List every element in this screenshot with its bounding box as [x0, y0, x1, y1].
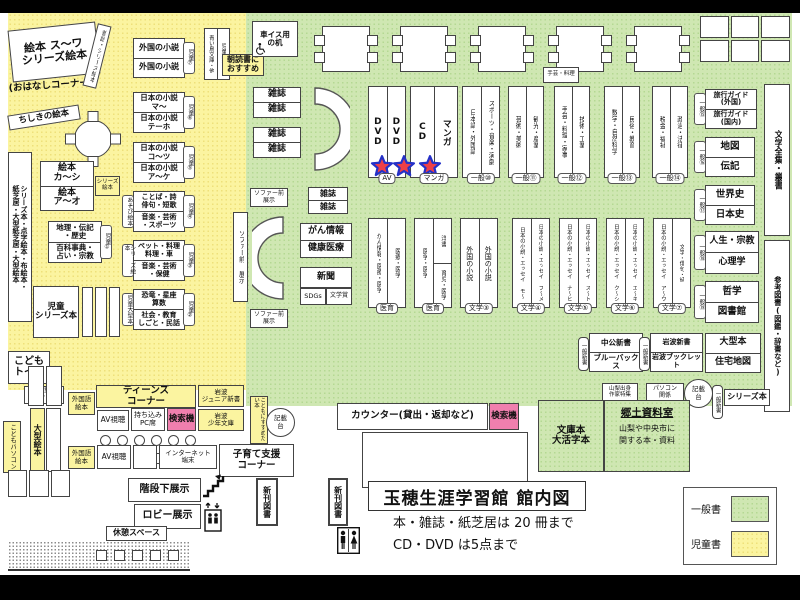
shelf-row: ソファー前展示 [251, 189, 287, 206]
new-av-star-2 [392, 154, 416, 178]
shelf-column: 日本の小説・エッセイ ス〜ト [578, 219, 597, 307]
text-line: 新刊図書 [262, 486, 271, 518]
shelf-row: 外国語絵本 [69, 393, 94, 414]
shelf-row: 日本史 [706, 205, 754, 225]
search-machine-1: 検索機 [167, 408, 196, 431]
text-line: 洋書 [439, 235, 446, 247]
shelf-row: 岩波ブックレット [651, 352, 702, 371]
text-line: 大活字本 [552, 436, 590, 446]
iwanami-shinsho-booklet: 岩波新書岩波ブックレット [650, 333, 703, 372]
shelf-class-tag: 児童② [183, 293, 195, 326]
shelf-row: 文学賞 [327, 289, 351, 304]
chair [470, 52, 481, 63]
general-shinsho-tag-3: 一般新書 [712, 385, 723, 419]
shelf-geography-encyclopedia: 地理・伝記・歴史百科事典・占い・宗教児童① [48, 221, 102, 263]
text-line: 端末 [165, 457, 211, 464]
chair [65, 134, 76, 145]
shelf-class-tag: 医育 [376, 303, 398, 314]
text-line: 関する本・資料 [619, 437, 675, 446]
sdgs: SDGs [300, 288, 326, 305]
byo-pc-seat: 持ち込みPC席 [131, 408, 165, 431]
sofa-display-bottom: ソファー前展示 [250, 309, 288, 328]
text-line: 展示 [254, 319, 284, 325]
text-line: こどもパソコン [8, 424, 15, 470]
text-line: おすすめ [227, 65, 259, 74]
chair [445, 52, 456, 63]
foreign-language-ehon-2: 外国語絵本 [68, 446, 95, 469]
newspaper: 新聞 [300, 267, 352, 288]
shelf-row: 雑誌 [254, 88, 300, 102]
shelf-class-tag: 一般⑯ [694, 141, 706, 173]
shelf-dinosaur-society: 恐竜・星座算数社会・教育しごと・民話児童②児童大型本 [133, 289, 185, 330]
text-line: 台 [692, 394, 705, 401]
shelf-class-tag: AV [378, 173, 395, 184]
shelf-class-tag: 児童④ [183, 195, 195, 228]
shelf-cell [29, 470, 48, 497]
literature-complete-works: 文学全集・叢書 [764, 84, 790, 236]
text-line: しごと・民話 [138, 320, 180, 328]
large-books-housing-maps: 大型本住宅地図 [705, 333, 761, 373]
shelf-cell [731, 40, 760, 62]
shelf-column: 文学・俳句・詩 [672, 219, 691, 307]
chair [601, 35, 612, 46]
text-line: 手芸・料理・家事 [560, 106, 567, 158]
text-line: 青い鳥文庫・他 [208, 35, 214, 74]
text-line: CD [417, 122, 427, 142]
shelf-column: 数学・自然科学 [605, 87, 622, 177]
shelf-class-tag: 文学⑥ [611, 303, 639, 314]
chuko-shinsho-bluebacks: 中公新書ブルーバックス [589, 333, 643, 372]
series-ehon-tag: シリーズ絵本 [95, 176, 120, 196]
text-line: 日本語・外国語 [468, 109, 475, 155]
wheelchair-icon [254, 42, 267, 55]
shelf-row: 音楽・芸術・保健 [134, 260, 184, 280]
shelf-kotoba-poetry: ことば・詩俳句・短歌音楽・芸術・スポーツ児童④あそび絵本 [133, 191, 185, 232]
blank-kiosk [133, 445, 157, 469]
shelf-side-label: あそび絵本 [122, 195, 134, 228]
text-line: コ〜ツ [140, 153, 178, 161]
elevator-icon [204, 501, 222, 532]
chair [314, 35, 325, 46]
philosophy-library-science: 哲学図書館一般⑲ [705, 281, 759, 323]
cancer-info-health: がん情報健康医療 [300, 223, 352, 258]
legend-row-general: 一般書 [691, 496, 769, 522]
text-line: がん情報・医療・医学 [374, 233, 381, 293]
sofa-front-display-strip: ソファー前 展示 [233, 212, 248, 302]
shelf-cell [95, 287, 106, 337]
shelf-column: 技術・工業 [572, 87, 590, 177]
text-line: こどもにすすめたい本 [253, 397, 266, 442]
text-line: 紙芝居・大型紙芝居・大型絵本 [12, 185, 20, 290]
internet-terminal: インターネット端末 [159, 445, 217, 469]
text-line: PC席 [134, 420, 162, 428]
shelf-jp-essay-mo: 日本の小説・エッセイ モ〜日本の小説・エッセイ フ〜メ文学④ [512, 218, 550, 308]
shelf-row: 伝記 [706, 157, 754, 177]
big-ehon-cell [46, 408, 61, 472]
chair [110, 134, 121, 145]
shelf-class-tag: 児童⑦ [183, 42, 195, 74]
new-books-1: 新刊図書 [256, 478, 278, 526]
shelf-ehon-ka-shi: 絵本カ〜シ絵本ア〜オ [40, 161, 94, 211]
shelf-row: AV視聴 [98, 446, 130, 468]
shelf-column: スポーツ・音楽・演劇 [481, 87, 500, 177]
shelf-cell [8, 470, 27, 497]
shelf-row: インターネット端末 [160, 446, 216, 468]
shelf-row: 旅行ガイド(国内) [706, 109, 756, 129]
text-line: ・保健 [142, 271, 177, 279]
shelf-class-tag: 一般⑫ [558, 173, 587, 184]
shelf-row: 子育て支援コーナー [220, 445, 293, 476]
text-line: ・歴史 [56, 232, 94, 240]
shelf-cell [731, 16, 760, 38]
text-line: (外国) [714, 99, 749, 107]
shelf-row: ブルーバックス [590, 352, 642, 371]
text-line: テーホ [140, 123, 178, 131]
shelf-slats-1 [82, 287, 120, 337]
text-line: 日本の小説・エッセイ ク〜シ [613, 224, 619, 302]
literary-award: 文学賞 [326, 288, 352, 305]
legend: 一般書 児童書 [683, 487, 777, 565]
shelf-row: ことば・詩俳句・短歌 [134, 192, 184, 211]
shelf-column: 日本の小説・エッセイ ア〜ウ [654, 219, 672, 307]
rest-space-label: 休憩スペース [106, 526, 167, 541]
shelf-row: 山梨出身作家特集 [603, 384, 637, 401]
local-materials-room: 郷土資料室山梨や中央市に関する本・資料 [604, 400, 690, 472]
stairs-icon [200, 471, 226, 499]
shelf-row: ロビー展示 [135, 505, 200, 528]
shelf-column: 手芸・料理・家事 [555, 87, 572, 177]
shelf-row: 健康医療 [301, 240, 351, 257]
shelf-row: 岩波少年文庫 [199, 410, 243, 430]
chair [679, 35, 690, 46]
lending-rule-books: 本・雑誌・紙芝居は 20 冊まで [393, 512, 574, 531]
shelf-craft-tech: 手芸・料理・家事技術・工業一般⑫ [554, 86, 590, 178]
text-line: ティーンズ [123, 386, 169, 396]
shelf-column: 日本の小説・エッセイ フ〜メ [531, 219, 550, 307]
general-shinsho-tag-1: 一般新書 [578, 337, 589, 371]
shelf-column: 医学・医学 [415, 219, 433, 307]
shelf-row: 休憩スペース [107, 527, 166, 540]
chair [445, 35, 456, 46]
shelf-row: 文庫本大活字本 [539, 401, 603, 471]
shelf-row: AV視聴 [98, 411, 128, 430]
shelf-row: がん情報 [301, 224, 351, 240]
shelf-cell [700, 40, 729, 62]
shelf-row: 人生・宗教 [706, 232, 758, 252]
shelf-column: 日本の小説・エッセイ モ〜 [513, 219, 531, 307]
text-line: スポーツ・音楽・演劇 [487, 100, 494, 165]
lending-rule-av: CD・DVD は5点まで [393, 534, 518, 553]
text-line: 台 [274, 423, 287, 430]
shelf-row: 新聞 [301, 268, 351, 287]
shelf-class-tag: 一般⑪ [512, 173, 541, 184]
shelf-jp-novels-ma-ho: 日本の小説マ〜日本の小説テーホ児童⑥ [133, 92, 185, 133]
shelf-column: 外国の小説 [479, 219, 498, 307]
shelf-class-tag: 一般⑬ [608, 173, 637, 184]
text-line: ・スポーツ [142, 222, 177, 230]
big-picture-books: 大型絵本 [30, 408, 45, 472]
text-line: マンガ [441, 119, 451, 146]
chair [470, 35, 481, 46]
shelf-class-tag: 文学⑤ [564, 303, 592, 314]
new-books-2: 新刊図書 [328, 478, 348, 526]
shelf-cancer-medical: がん情報・医療・医学医療・医学医育 [368, 218, 406, 308]
shelf-jp-novels-ko-ke: 日本の小説コ〜ツ日本の小説ア〜ケ児童⑤ [133, 142, 185, 183]
shelf-row: 絵本カ〜シ [41, 162, 93, 186]
kosodate-support-corner: 子育て支援コーナー [219, 444, 294, 477]
shelf-jp-essay-a-u: 日本の小説・エッセイ ア〜ウ文学・俳句・詩文学⑦ [653, 218, 691, 308]
legend-general-label: 一般書 [691, 501, 721, 516]
big-ehon-shelf-top [28, 366, 62, 406]
text-line: 絵本 [72, 458, 92, 465]
text-line: 新刊図書 [333, 486, 342, 518]
shelf-foreign-novels: 外国の小説外国の小説文学③ [460, 218, 498, 308]
shelf-cell [109, 287, 120, 337]
shelf-row: 中公新書 [590, 334, 642, 352]
general-shinsho-tag-2: 一般新書 [639, 337, 650, 371]
shelf-side-label: 児童大型本 [122, 293, 134, 326]
shelf-column: 観光・産業 [526, 87, 544, 177]
shelf-row: 朝読書におすすめ [223, 55, 263, 75]
text-line: 民俗・教育 [627, 116, 634, 149]
life-religion-psychology: 人生・宗教心理学一般⑱ [705, 231, 759, 274]
text-line: 政治・法律 [675, 116, 682, 149]
shelf-row: 旅行ガイド(外国) [706, 90, 756, 109]
iwanami-shonen-bunko: 岩波少年文庫 [198, 409, 244, 431]
shelf-row: 岩波ジュニア新書 [199, 386, 243, 406]
shelf-class-tag: 児童⑥ [183, 96, 195, 129]
chair [314, 52, 325, 63]
chair [601, 52, 612, 63]
series-braille-kamishibai-strip: シリーズ本・点字絵本・布絵本・紙芝居・大型紙芝居・大型絵本 [8, 152, 32, 322]
text-line: 文学全集・叢書 [772, 130, 782, 190]
shelf-class-tag: 児童⑤ [183, 146, 195, 179]
text-line: 少年文庫 [208, 420, 234, 427]
chair [523, 35, 534, 46]
text-line: マ〜 [140, 103, 178, 111]
shelf-art-tourism: 芸術・美術観光・産業一般⑪ [508, 86, 544, 178]
text-line: コーナー [123, 397, 169, 407]
shelf-column: 医療・医学 [387, 219, 406, 307]
shelf-class-tag: 文学⑦ [658, 303, 686, 314]
maps-biographies: 地図伝記一般⑯ [705, 137, 755, 177]
world-japan-history: 世界史日本史一般⑰ [705, 185, 755, 225]
shelf-slats-top-right [700, 16, 790, 62]
counter: カウンター(貸出・返却など) [337, 403, 488, 430]
text-line: 税金・福祉 [658, 116, 665, 149]
text-line: 一般新書 [580, 343, 586, 365]
round-table [74, 120, 112, 158]
travel-guides: 旅行ガイド(外国)旅行ガイド(国内)一般⑮ [705, 89, 757, 129]
shelf-row: 日本の小説コ〜ツ [134, 143, 184, 162]
shelf-column: 外国の小説 [461, 219, 479, 307]
shelf-cell [82, 287, 93, 337]
chair [392, 35, 403, 46]
shelf-row: 社会・教育しごと・民話 [134, 309, 184, 329]
text-line: 関係 [653, 393, 677, 399]
shelf-row: 雑誌 [254, 128, 300, 142]
iwanami-junior-shinsho: 岩波ジュニア新書 [198, 385, 244, 407]
shelf-row: 大型本 [706, 334, 760, 353]
shelf-row: 外国語絵本 [69, 447, 94, 468]
text-line: ア〜オ [53, 198, 80, 208]
text-line: 日本の小説・エッセイ エ〜キ [631, 224, 637, 302]
chair [548, 52, 559, 63]
chair [548, 35, 559, 46]
text-line: ソファー前 展示 [237, 230, 244, 284]
shelf-row: 検索機 [168, 409, 195, 430]
text-line: 数学・自然科学 [610, 109, 617, 155]
shelf-cell [28, 366, 44, 406]
magazines-1: 雑誌雑誌 [253, 87, 301, 118]
reference-books: 参考図書(図鑑・辞書など) [764, 240, 790, 412]
shelf-row: 住宅地図 [706, 353, 760, 373]
shelf-row: シリーズ本 [725, 390, 769, 405]
shelf-column: 民俗・教育 [622, 87, 640, 177]
text-line: 医学・医学 [420, 248, 427, 278]
kids-computer: こどもパソコン [3, 421, 21, 473]
reading-table-5 [634, 26, 682, 72]
shelf-side-label: シリーズ絵本 [122, 244, 134, 277]
text-line: 作家特集 [609, 393, 631, 399]
shelf-row: シリーズ絵本 [96, 177, 119, 195]
shelf-jp-essay-na-hi: 日本の小説・エッセイ ナ〜ヒ日本の小説・エッセイ ス〜ト文学⑤ [559, 218, 597, 308]
shelf-row: 日本の小説マ〜 [134, 93, 184, 112]
shelf-pet-cooking: ペット・料理料理・車音楽・芸術・保健児童③シリーズ絵本 [133, 240, 185, 281]
shelf-foreign-novels-children: 外国の小説外国の小説児童⑦ [133, 38, 185, 78]
bench [168, 550, 179, 561]
chair [367, 52, 378, 63]
teens-corner: ティーンズコーナー [96, 385, 196, 408]
bench [132, 550, 143, 561]
room-title: 郷土資料室 [621, 408, 674, 419]
chair [523, 52, 534, 63]
text-line: シリーズ本 [35, 312, 77, 321]
legend-children-swatch [731, 531, 769, 557]
shelf-row: 日本の小説テーホ [134, 112, 184, 132]
text-line: 算数 [142, 300, 177, 308]
reading-table-2 [400, 26, 448, 72]
chair [626, 35, 637, 46]
shelf-cell [46, 366, 62, 406]
search-machine-2: 検索機 [489, 403, 519, 430]
shelf-row: 日本の小説ア〜ケ [134, 162, 184, 182]
shelf-row: 百科事典・占い・宗教 [49, 242, 101, 263]
shelf-cell [761, 40, 790, 62]
chair [367, 35, 378, 46]
shelf-column: 政治・法律 [670, 87, 688, 177]
text-line: 日本の小説・エッセイ ス〜ト [584, 224, 590, 302]
text-line: ア〜ケ [140, 173, 178, 181]
shelf-column: 芸術・美術 [509, 87, 526, 177]
shelf-row: 持ち込みPC席 [132, 409, 164, 430]
legend-row-children: 児童書 [691, 531, 769, 557]
shelf-row: 恐竜・星座算数 [134, 290, 184, 309]
shelf-medical-childcare: 医学・医学洋書育児・医学医育 [414, 218, 452, 308]
shelf-row: 図書館 [706, 302, 758, 323]
shelf-row: ペット・料理料理・車 [134, 241, 184, 260]
6 [100, 435, 202, 444]
text-line: コーナー [233, 461, 281, 471]
text-line: 参考図書(図鑑・辞書など) [773, 276, 782, 377]
text-line: 医療・医学 [393, 248, 400, 278]
shelf-class-tag: 一般⑰ [694, 189, 706, 221]
text-line: 観光・産業 [531, 116, 538, 149]
reading-table-1 [322, 26, 370, 72]
text-line: 占い・宗教 [56, 252, 94, 260]
text-line: (国内) [714, 119, 749, 127]
legend-general-swatch [731, 496, 769, 522]
av-viewing-1: AV視聴 [97, 410, 129, 431]
text-line: 日本の小説・エッセイ フ〜メ [537, 224, 543, 302]
text-line: 日本の小説・エッセイ ア〜ウ [660, 224, 666, 302]
text-line: 文学・俳句・詩 [678, 244, 684, 283]
text-line: 子育て支援 [233, 450, 281, 460]
shelf-row: 外国の小説 [134, 39, 184, 58]
text-line: 外国の小説 [484, 246, 492, 281]
bench [96, 550, 107, 561]
shelf-class-tag: 医育 [422, 303, 444, 314]
shelf-class-tag: 一般⑱ [694, 235, 706, 270]
shelf-row: 哲学 [706, 282, 758, 302]
shelf-cell [700, 16, 729, 38]
foreign-language-ehon-1: 外国語絵本 [68, 392, 95, 415]
shelf-column: がん情報・医療・医学 [369, 219, 387, 307]
reading-table-3 [478, 26, 526, 72]
shelf-row: 世界史 [706, 186, 754, 205]
chair [88, 111, 99, 122]
shelf-jp-essay-ku-shi: 日本の小説・エッセイ ク〜シ日本の小説・エッセイ エ〜キ文学⑥ [606, 218, 644, 308]
shelf-row: 岩波新書 [651, 334, 702, 352]
asadoku-recommend: 朝読書におすすめ [222, 54, 264, 76]
shelf-row: 検索機 [490, 404, 518, 429]
shelf-row: 階段下展示 [129, 479, 200, 501]
text-line: 大型絵本 [33, 424, 42, 456]
wheelchair-desk: 車イス用の机 [252, 21, 298, 57]
text-line: 絵本 [72, 404, 92, 411]
shelf-row: 音楽・芸術・スポーツ [134, 211, 184, 231]
chishiki-ehon-shelf: ちしきの絵本 [7, 104, 80, 130]
shelf-column: 日本の小説・エッセイ ク〜シ [607, 219, 625, 307]
text-line: 料理・車 [138, 251, 180, 259]
shelf-class-tag: 一般⑭ [656, 173, 685, 184]
chair [679, 52, 690, 63]
craft-cooking-note: 手芸・料理 [543, 67, 579, 83]
text-line: 展示 [254, 198, 284, 204]
shelf-math-folklore: 数学・自然科学民俗・教育一般⑬ [604, 86, 640, 178]
av-viewing-2: AV視聴 [97, 445, 131, 469]
chair [392, 52, 403, 63]
bunko-large-print: 文庫本大活字本 [538, 400, 604, 472]
text-line: カ〜シ [53, 174, 80, 184]
shelf-tax-politics: 税金・福祉政治・法律一般⑭ [652, 86, 688, 178]
text-line: 俳句・短歌 [142, 202, 177, 210]
shelf-language-sports: 日本語・外国語スポーツ・音楽・演劇一般⑩ [462, 86, 500, 178]
text-line: DVD [391, 117, 401, 147]
letterbox-top [0, 0, 800, 13]
children-series-books: 児童シリーズ本 [33, 286, 79, 338]
text-line: 一般新書 [714, 391, 720, 413]
magazines-2: 雑誌雑誌 [253, 127, 301, 158]
shelf-row: 雑誌 [309, 188, 347, 200]
page-title: 玉穂生涯学習館 館内図 [368, 481, 586, 511]
text-line: 芸術・美術 [514, 116, 521, 149]
shelf-class-tag: マンガ [420, 173, 449, 184]
shelf-row: ちしきの絵本 [8, 106, 79, 130]
text-line: 日本の小説・エッセイ モ〜 [519, 227, 525, 299]
shelf-class-tag: 文学④ [517, 303, 545, 314]
magazines-3: 雑誌雑誌 [308, 187, 348, 214]
